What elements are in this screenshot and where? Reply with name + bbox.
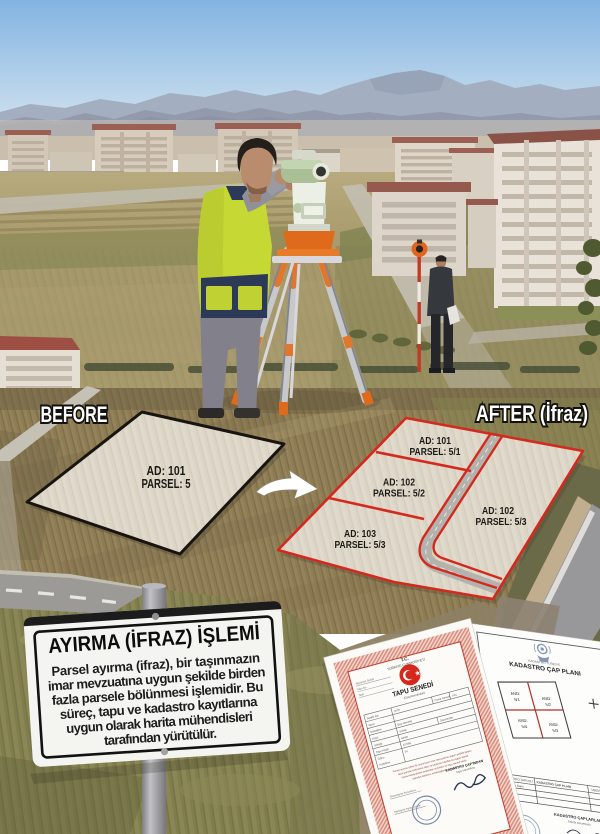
svg-text:BEFORE: BEFORE bbox=[41, 402, 108, 427]
svg-text:AFTER (İfraz): AFTER (İfraz) bbox=[476, 401, 588, 426]
svg-text:PARSEL: 5/1: PARSEL: 5/1 bbox=[410, 446, 461, 458]
svg-text:PARSEL: 5/2: PARSEL: 5/2 bbox=[373, 488, 425, 500]
svg-text:PARSEL: 5/3: PARSEL: 5/3 bbox=[476, 516, 527, 528]
svg-text:PARSEL: 5/3: PARSEL: 5/3 bbox=[335, 539, 386, 551]
svg-text:AND:: AND: bbox=[541, 696, 552, 701]
svg-text:AND:: AND: bbox=[517, 718, 528, 723]
svg-text:AND:: AND: bbox=[510, 691, 521, 696]
svg-text:AND:: AND: bbox=[548, 722, 559, 727]
svg-text:PARSEL: 5: PARSEL: 5 bbox=[142, 476, 191, 491]
